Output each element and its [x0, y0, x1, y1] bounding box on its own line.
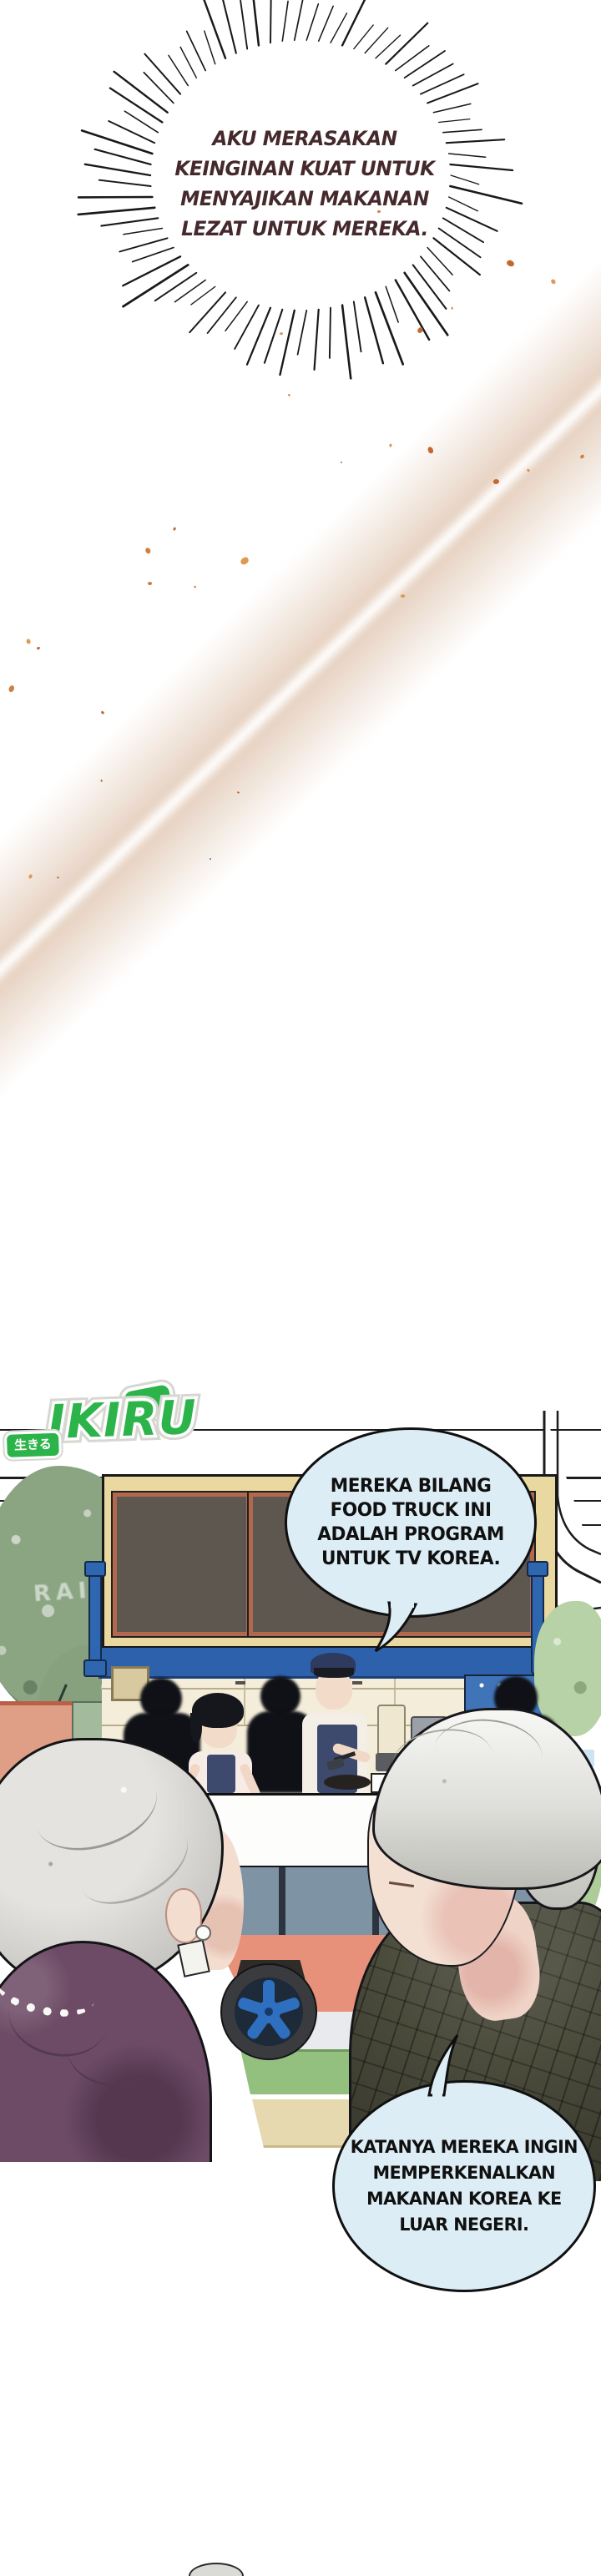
paint-speckle — [8, 684, 16, 693]
paint-speckle — [28, 874, 33, 879]
paint-speckle — [427, 447, 434, 454]
hydraulic-arm-right-knob — [527, 1561, 548, 1577]
paint-speckle — [27, 639, 31, 644]
vendor-woman-hair-side — [190, 1713, 202, 1743]
paint-speckle — [579, 454, 584, 459]
next-panel-peek — [189, 2563, 244, 2576]
speech-bubble-tv-program: MEREKA BILANG FOOD TRUCK INI ADALAH PROG… — [285, 1427, 537, 1618]
paint-speckle — [493, 478, 500, 484]
paint-speckle — [100, 780, 103, 782]
paint-speckle — [280, 332, 283, 336]
speech-bubble-introduce: KATANYA MEREKA INGIN MEMPERKENALKAN MAKA… — [332, 2080, 596, 2292]
paint-speckle — [173, 527, 177, 531]
frying-pan — [324, 1775, 371, 1790]
paint-speckle — [389, 443, 393, 447]
ikiru-logo-badge: 生きる — [7, 1433, 59, 1457]
hydraulic-arm-left-knob — [84, 1561, 106, 1577]
vendor-woman-apron — [207, 1755, 235, 1793]
cabinet-handle — [352, 1681, 362, 1685]
paint-speckle — [101, 710, 105, 715]
comic-page: AKU MERASAKAN KEINGINAN KUAT UNTUK MENYA… — [0, 0, 601, 2576]
sand-band-lower — [0, 318, 601, 1099]
cabinet-handle — [235, 1681, 245, 1685]
speech-bubble-introduce-tail — [427, 2033, 476, 2099]
menu-chalkboard-left — [113, 1493, 250, 1636]
paint-speckle — [526, 468, 530, 472]
paint-speckle — [57, 876, 59, 879]
paint-speckle — [148, 581, 153, 585]
paint-speckle — [37, 646, 41, 649]
food-truck-panel: RAI — [0, 1394, 601, 2296]
truck-wheel — [215, 1962, 322, 2062]
hydraulic-arm-left — [88, 1566, 102, 1674]
paint-speckle — [145, 548, 150, 554]
paint-speckle — [400, 593, 405, 598]
speech-bubble-tv-program-tail — [374, 1601, 432, 1656]
ikiru-logo: IKIRU IKIRU IKIRU 生きる — [3, 1390, 240, 1477]
speech-bubble-tv-program-text: MEREKA BILANG FOOD TRUCK INI ADALAH PROG… — [317, 1474, 504, 1571]
paint-speckle — [237, 790, 240, 793]
old-woman-earring — [195, 1925, 211, 1941]
ikiru-logo-word: IKIRU — [47, 1393, 198, 1448]
paint-speckle — [194, 585, 197, 588]
paint-speckle — [240, 556, 250, 565]
vendor-man-hair — [314, 1668, 354, 1678]
paint-speckle — [210, 858, 211, 860]
customer-silhouette-head — [260, 1676, 300, 1716]
background-sign-text: RAI — [33, 1578, 93, 1608]
paint-speckle — [341, 462, 343, 464]
speech-bubble-introduce-text: KATANYA MEREKA INGIN MEMPERKENALKAN MAKA… — [351, 2134, 578, 2238]
hydraulic-arm-left-base — [83, 1659, 107, 1677]
burst-bubble-text: AKU MERASAKAN KEINGINAN KUAT UNTUK MENYA… — [171, 124, 438, 244]
